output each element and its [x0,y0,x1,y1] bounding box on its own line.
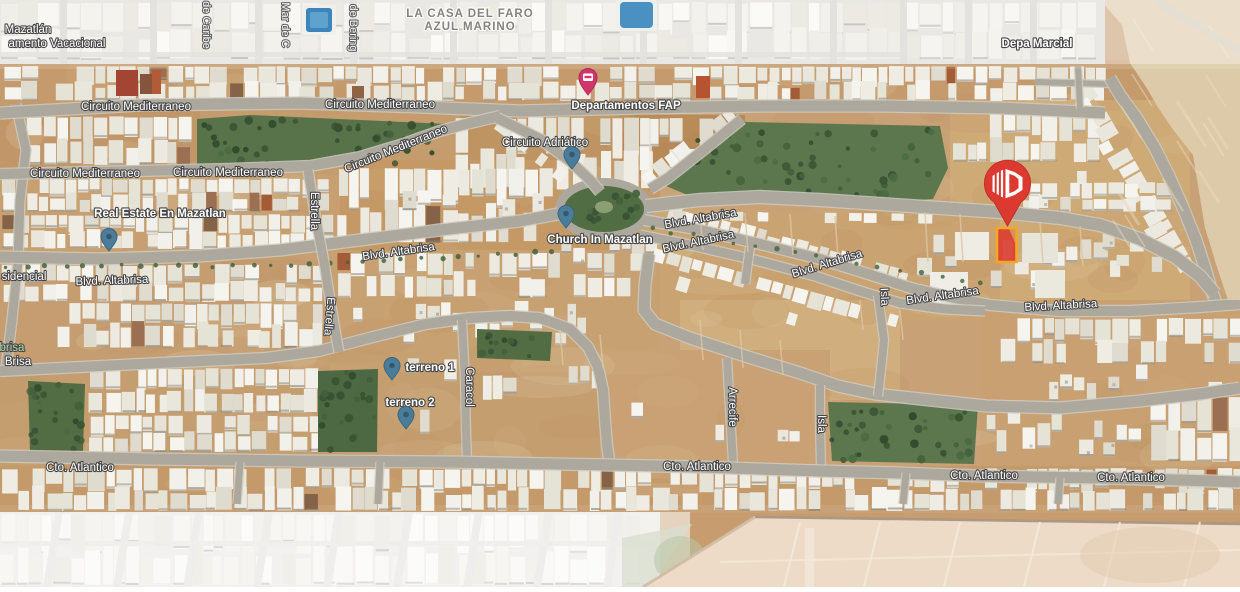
svg-text:Church In Mazatlan: Church In Mazatlan [547,234,652,246]
svg-text:Mar de C: Mar de C [279,2,291,47]
svg-text:brisa: brisa [0,342,25,354]
svg-text:Mazatlán: Mazatlán [5,24,52,36]
svg-text:terreno 1: terreno 1 [405,362,455,374]
svg-text:Cto. Atlantico: Cto. Atlantico [46,462,114,474]
svg-text:LA CASA DEL FARO: LA CASA DEL FARO [406,8,533,20]
svg-text:Isla: Isla [878,288,891,307]
svg-text:Departamentos FAP: Departamentos FAP [571,100,681,112]
svg-text:Cto. Atlantico: Cto. Atlantico [663,461,731,473]
svg-text:amento Vacacional: amento Vacacional [9,38,106,50]
svg-text:Circuito Mediterraneo: Circuito Mediterraneo [325,99,435,111]
svg-text:Cto. Atlantico: Cto. Atlantico [950,470,1018,482]
svg-text:Real Estate En Mazatlan: Real Estate En Mazatlan [94,208,226,220]
svg-text:Circuito Mediterraneo: Circuito Mediterraneo [173,167,283,179]
svg-text:Circuito Mediterraneo: Circuito Mediterraneo [81,101,191,113]
svg-text:Caracol: Caracol [463,367,475,407]
svg-text:Isla: Isla [815,415,827,434]
svg-text:de Bering: de Bering [347,4,359,51]
svg-text:Estrella: Estrella [308,192,320,231]
svg-text:Arrecife: Arrecife [726,387,738,427]
svg-text:Depa Marcial: Depa Marcial [1002,38,1073,50]
svg-text:AZUL MARINO: AZUL MARINO [424,21,515,33]
svg-text:Brisa: Brisa [5,356,32,368]
svg-text:Cto. Atlantico: Cto. Atlantico [1097,472,1165,484]
svg-text:Blvd. Altabrisa: Blvd. Altabrisa [75,274,149,289]
svg-text:Circuito Mediterraneo: Circuito Mediterraneo [30,168,140,180]
svg-text:de Caribe: de Caribe [200,1,212,49]
svg-text:sidencial: sidencial [2,271,47,283]
